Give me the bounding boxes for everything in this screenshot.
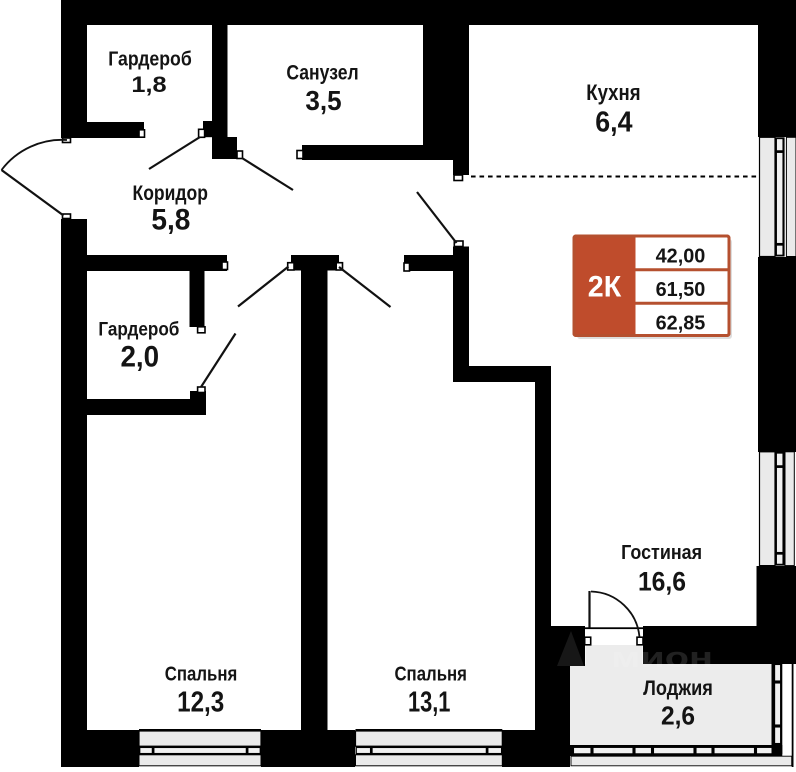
svg-text:мион: мион xyxy=(611,642,713,674)
svg-text:Санузел: Санузел xyxy=(286,61,358,85)
svg-text:5,8: 5,8 xyxy=(151,204,190,237)
svg-text:1,8: 1,8 xyxy=(131,72,166,97)
svg-text:Спальня: Спальня xyxy=(394,663,467,686)
svg-text:13,1: 13,1 xyxy=(408,687,451,719)
svg-text:2,6: 2,6 xyxy=(661,701,695,731)
svg-text:Лоджия: Лоджия xyxy=(643,676,713,700)
svg-text:Кухня: Кухня xyxy=(586,80,640,105)
svg-text:Гардероб: Гардероб xyxy=(98,319,179,341)
svg-text:42,00: 42,00 xyxy=(656,246,706,268)
svg-text:2К: 2К xyxy=(588,271,622,304)
svg-text:Спальня: Спальня xyxy=(165,663,238,686)
svg-text:16,6: 16,6 xyxy=(638,566,686,596)
svg-text:61,50: 61,50 xyxy=(656,279,706,301)
svg-text:Гардероб: Гардероб xyxy=(108,49,192,71)
svg-text:62,85: 62,85 xyxy=(656,313,706,335)
svg-text:3,5: 3,5 xyxy=(305,85,341,116)
svg-text:Коридор: Коридор xyxy=(133,181,208,205)
svg-text:2,0: 2,0 xyxy=(120,340,159,373)
svg-text:12,3: 12,3 xyxy=(177,687,224,719)
svg-text:Гостиная: Гостиная xyxy=(621,541,702,564)
svg-text:6,4: 6,4 xyxy=(595,106,632,138)
